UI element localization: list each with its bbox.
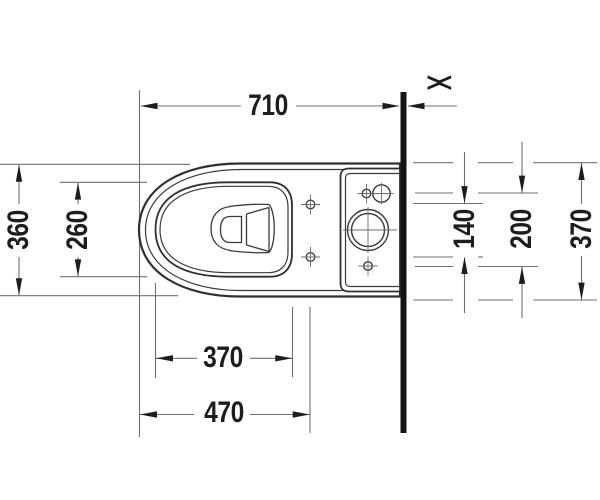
arrow-140-bottom [461,257,467,274]
arrow-710-right [383,103,400,109]
arrow-370r-bottom [578,283,584,300]
drawing-linework [0,0,600,500]
arrow-140-top [461,186,467,203]
arrow-710-left [141,103,158,109]
arrow-370r-top [578,163,584,180]
arrow-200-top [519,176,525,193]
dim-label-bowl-inner-length: 370 [203,343,243,373]
cistern-platform [341,169,401,292]
arrow-260-bottom [75,259,81,276]
dim-label-front-to-seat-holes: 470 [204,398,244,428]
dim-label-tank-hole-spacing: 200 [507,209,537,249]
arrow-360-top [16,165,22,182]
wall-line [401,92,407,433]
dim-label-rear-width: 370 [567,209,597,249]
dim-label-total-depth: 710 [248,91,288,121]
variable-distance-symbol: >< [427,70,450,97]
arrow-wall-offset [408,103,425,109]
arrow-370b-left [156,355,173,361]
technical-drawing-canvas: 710 >< 360 260 370 470 140 200 370 [0,0,600,500]
arrow-260-top [75,183,81,200]
dim-label-bowl-outer-width: 360 [4,210,34,250]
arrow-370b-right [275,355,292,361]
dim-label-seat-hole-spacing: 140 [450,209,480,249]
arrow-470-right [293,411,310,417]
seat-ring-outer [156,182,293,276]
dim-label-bowl-inner-width: 260 [63,210,93,250]
arrow-470-left [140,411,157,417]
arrow-200-bottom [519,267,525,284]
arrow-360-bottom [16,278,22,295]
